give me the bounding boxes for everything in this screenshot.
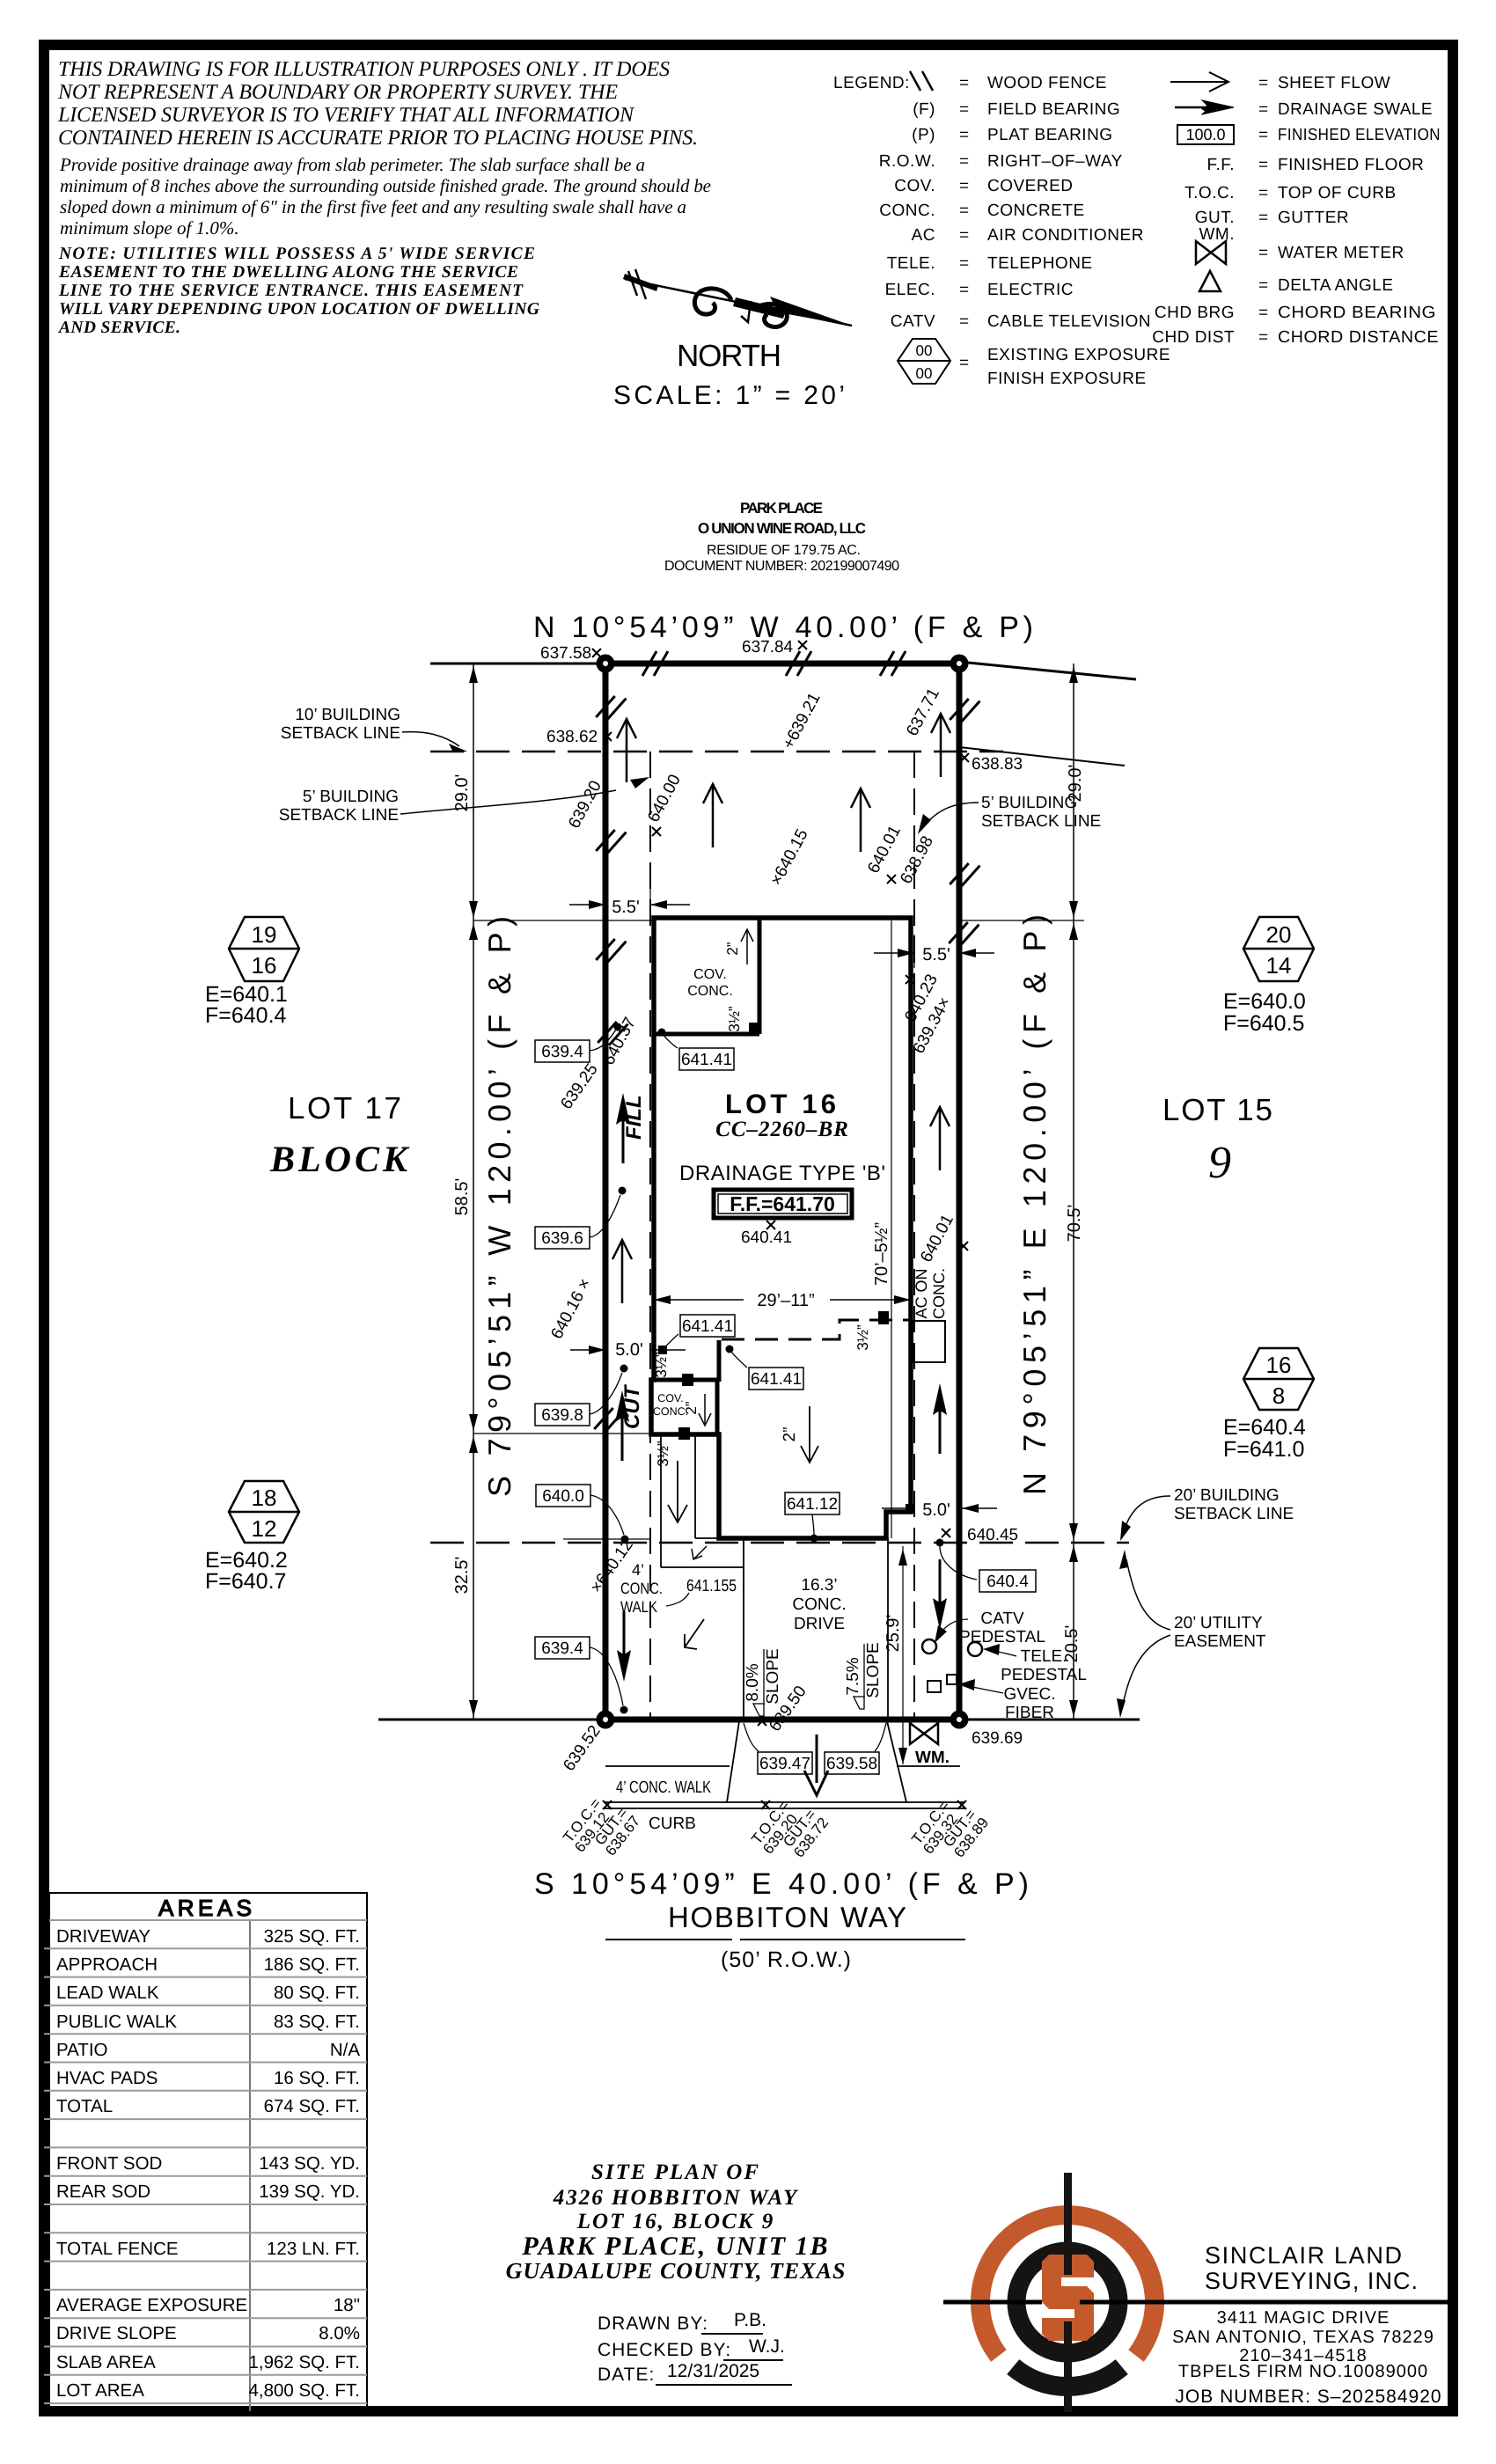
svg-text:GVEC.: GVEC. (1003, 1685, 1055, 1704)
svg-text:20’ BUILDING: 20’ BUILDING (1174, 1486, 1280, 1505)
svg-text:=: = (959, 226, 970, 245)
svg-text:NOTE: UTILITIES WILL POSSESS A: NOTE: UTILITIES WILL POSSESS A 5' WIDE S… (58, 245, 535, 263)
svg-text:58.5': 58.5' (452, 1178, 472, 1216)
svg-text:18: 18 (252, 1485, 277, 1511)
svg-text:3½”: 3½” (655, 1441, 671, 1467)
svg-text:REAR SOD: REAR SOD (56, 2182, 150, 2202)
svg-text:674 SQ. FT.: 674 SQ. FT. (264, 2096, 360, 2116)
svg-text:FINISHED ELEVATION: FINISHED ELEVATION (1278, 126, 1441, 144)
svg-text:=: = (1258, 126, 1269, 144)
svg-text:CATV: CATV (980, 1610, 1024, 1628)
svg-text:639.47: 639.47 (759, 1755, 810, 1773)
svg-text:CONC.: CONC. (792, 1595, 846, 1614)
svg-text:83 SQ. FT.: 83 SQ. FT. (274, 2012, 360, 2032)
svg-text:5’ BUILDING: 5’ BUILDING (303, 788, 399, 806)
svg-text:16: 16 (1266, 1352, 1292, 1378)
svg-text:14: 14 (1266, 952, 1292, 979)
svg-text:640.0: 640.0 (542, 1487, 584, 1506)
svg-text:=: = (959, 74, 970, 92)
svg-text:=: = (1258, 304, 1269, 322)
svg-text:637.58: 637.58 (540, 644, 591, 663)
svg-text:GUT.: GUT. (1195, 209, 1235, 227)
svg-text:SURVEYING, INC.: SURVEYING, INC. (1205, 2268, 1418, 2294)
svg-text:=: = (959, 100, 970, 119)
svg-text:PUBLIC WALK: PUBLIC WALK (56, 2012, 177, 2032)
svg-text:638.83: 638.83 (972, 755, 1023, 774)
svg-text:70.5': 70.5' (1065, 1205, 1084, 1243)
svg-text:639.4: 639.4 (541, 1043, 583, 1061)
svg-text:GUTTER: GUTTER (1278, 209, 1349, 227)
svg-text:minimum of 8 inches above the: minimum of 8 inches above the surroundin… (60, 175, 711, 196)
svg-text:APPROACH: APPROACH (56, 1954, 158, 1975)
svg-text:16.3’: 16.3’ (801, 1576, 837, 1595)
svg-text:4326 HOBBITON WAY: 4326 HOBBITON WAY (553, 2186, 799, 2210)
svg-text:DOCUMENT NUMBER: 202199007490: DOCUMENT NUMBER: 202199007490 (664, 559, 899, 574)
svg-text:SCALE: 1” = 20’: SCALE: 1” = 20’ (613, 381, 845, 410)
svg-text:sloped down a minimum of 6" in: sloped down a minimum of 6" in the first… (60, 196, 686, 217)
svg-text:F=640.5: F=640.5 (1223, 1011, 1304, 1036)
svg-text:638.62: 638.62 (546, 728, 598, 746)
svg-text:641.12: 641.12 (787, 1495, 838, 1514)
svg-text:WM.: WM. (915, 1749, 950, 1767)
svg-text:SETBACK LINE: SETBACK LINE (1174, 1505, 1294, 1523)
svg-text:AND SERVICE.: AND SERVICE. (57, 319, 180, 337)
svg-text:CHORD DISTANCE: CHORD DISTANCE (1278, 328, 1439, 347)
svg-text:=: = (959, 126, 970, 144)
svg-text:×640.15: ×640.15 (767, 826, 812, 889)
svg-text:7.5%: 7.5% (844, 1657, 862, 1695)
svg-text:FINISHED FLOOR: FINISHED FLOOR (1278, 156, 1424, 174)
svg-text:641.155: 641.155 (686, 1577, 737, 1595)
svg-text:639.20: 639.20 (565, 778, 605, 832)
svg-text:3½”: 3½” (854, 1324, 871, 1351)
svg-text:CHECKED BY:: CHECKED BY: (598, 2340, 731, 2360)
svg-text:NOT REPRESENT A BOUNDARY OR PR: NOT REPRESENT A BOUNDARY OR PROPERTY SUR… (57, 81, 618, 104)
svg-text:F=640.7: F=640.7 (205, 1569, 286, 1594)
svg-text:=: = (1258, 74, 1269, 92)
svg-text:639.8: 639.8 (541, 1406, 583, 1425)
svg-text:25.9': 25.9' (884, 1615, 903, 1653)
svg-text:HOBBITON WAY: HOBBITON WAY (668, 1901, 906, 1933)
svg-text:minimum slope of 1.0%.: minimum slope of 1.0%. (60, 217, 239, 238)
svg-text:639.4: 639.4 (541, 1639, 583, 1658)
svg-text:3411 MAGIC DRIVE: 3411 MAGIC DRIVE (1217, 2308, 1390, 2328)
svg-text:TELEPHONE: TELEPHONE (987, 254, 1093, 273)
svg-text:DRIVE SLOPE: DRIVE SLOPE (56, 2323, 177, 2343)
svg-text:WALK: WALK (620, 1598, 657, 1616)
svg-text:BLOCK: BLOCK (269, 1140, 411, 1180)
svg-text:640.01: 640.01 (864, 823, 905, 876)
svg-text:00: 00 (916, 342, 933, 359)
svg-text:20’ UTILITY: 20’ UTILITY (1174, 1614, 1263, 1632)
svg-text:143 SQ. YD.: 143 SQ. YD. (259, 2153, 360, 2174)
svg-text:32.5': 32.5' (452, 1557, 472, 1595)
svg-text:29.0': 29.0' (452, 774, 472, 812)
svg-text:LOT 17: LOT 17 (288, 1091, 401, 1126)
svg-text:SETBACK LINE: SETBACK LINE (279, 806, 399, 825)
svg-text:WILL VARY DEPENDING UPON LOCAT: WILL VARY DEPENDING UPON LOCATION OF DWE… (59, 300, 539, 319)
svg-text:TELE.: TELE. (1021, 1647, 1067, 1666)
svg-text:CONC.: CONC. (620, 1580, 663, 1597)
svg-text:638.98: 638.98 (897, 833, 937, 887)
svg-text:18": 18" (334, 2295, 360, 2315)
svg-text:(50’ R.O.W.): (50’ R.O.W.) (721, 1947, 851, 1972)
svg-text:640.45: 640.45 (967, 1526, 1018, 1544)
svg-text:CHD DIST: CHD DIST (1152, 328, 1235, 347)
svg-text:20: 20 (1266, 921, 1292, 948)
svg-text:LINE TO THE SERVICE ENTRANCE.: LINE TO THE SERVICE ENTRANCE. THIS EASEM… (58, 282, 524, 300)
svg-text:F.F.: F.F. (1206, 156, 1235, 174)
svg-text:CONC.: CONC. (930, 1268, 948, 1319)
svg-text:TOTAL FENCE: TOTAL FENCE (56, 2239, 179, 2259)
svg-text:F=641.0: F=641.0 (1223, 1437, 1304, 1462)
svg-text:123 LN. FT.: 123 LN. FT. (267, 2239, 360, 2259)
svg-text:639.25: 639.25 (557, 1060, 602, 1113)
svg-text:E=640.0: E=640.0 (1223, 989, 1306, 1014)
svg-text:FILL: FILL (622, 1095, 646, 1140)
svg-text:TOP OF CURB: TOP OF CURB (1278, 184, 1397, 202)
svg-text:+639.21: +639.21 (780, 690, 825, 752)
svg-text:325 SQ. FT.: 325 SQ. FT. (264, 1926, 360, 1947)
svg-text:3½”: 3½” (726, 1006, 743, 1032)
svg-text:=: = (1258, 328, 1269, 347)
svg-text:CONC.: CONC. (687, 984, 733, 999)
svg-text:S 79°05’51” W 120.00’ (F & P): S 79°05’51” W 120.00’ (F & P) (481, 916, 517, 1497)
svg-text:COV.: COV. (693, 967, 727, 982)
svg-text:637.84: 637.84 (742, 638, 794, 656)
svg-text:2”: 2” (683, 1401, 700, 1414)
svg-text:FIELD BEARING: FIELD BEARING (987, 100, 1120, 119)
svg-text:=: = (959, 202, 970, 220)
svg-text:CONTAINED HEREIN IS ACCURATE P: CONTAINED HEREIN IS ACCURATE PRIOR TO PL… (58, 127, 698, 150)
svg-text:S 10°54’09” E 40.00’ (F & P): S 10°54’09” E 40.00’ (F & P) (534, 1867, 1029, 1901)
svg-text:DRIVE: DRIVE (794, 1615, 845, 1633)
svg-text:SINCLAIR LAND: SINCLAIR LAND (1205, 2242, 1402, 2269)
svg-text:639.58: 639.58 (826, 1755, 877, 1773)
svg-text:139 SQ. YD.: 139 SQ. YD. (259, 2182, 360, 2202)
svg-text:8.0%: 8.0% (744, 1663, 762, 1701)
svg-text:N/A: N/A (330, 2040, 361, 2060)
svg-text:5.0': 5.0' (922, 1500, 950, 1520)
svg-text:4’ CONC. WALK: 4’ CONC. WALK (616, 1778, 711, 1797)
svg-text:9: 9 (1208, 1138, 1231, 1188)
svg-text:LOT 16: LOT 16 (725, 1089, 836, 1119)
svg-text:4,800 SQ. FT.: 4,800 SQ. FT. (249, 2380, 360, 2401)
svg-text:=: = (959, 254, 970, 273)
svg-text:T.O.C.: T.O.C. (1184, 184, 1235, 202)
svg-text:=: = (1258, 244, 1269, 262)
svg-text:LEAD WALK: LEAD WALK (56, 1983, 159, 2003)
svg-text:=: = (959, 281, 970, 299)
svg-text:CURB: CURB (649, 1815, 696, 1833)
svg-text:16: 16 (252, 952, 277, 979)
svg-text:8.0%: 8.0% (319, 2323, 360, 2343)
svg-text:F.F.=641.70: F.F.=641.70 (730, 1192, 835, 1215)
svg-text:WM.: WM. (1199, 225, 1235, 244)
svg-text:TBPELS FIRM NO.10089000: TBPELS FIRM NO.10089000 (1178, 2362, 1428, 2381)
svg-text:CATV: CATV (891, 312, 935, 331)
svg-text:FRONT SOD: FRONT SOD (56, 2153, 162, 2174)
svg-text:70’–5½”: 70’–5½” (872, 1222, 891, 1286)
svg-text:=: = (1258, 100, 1269, 119)
svg-text:SAN ANTONIO, TEXAS 78229: SAN ANTONIO, TEXAS 78229 (1172, 2328, 1434, 2347)
svg-text:DRIVEWAY: DRIVEWAY (56, 1926, 150, 1947)
svg-text:SLOPE: SLOPE (864, 1642, 883, 1698)
svg-text:JOB NUMBER: S–202584920: JOB NUMBER: S–202584920 (1175, 2387, 1441, 2407)
svg-text:641.41: 641.41 (681, 1051, 732, 1069)
svg-text:EASEMENT TO THE DWELLING ALONG: EASEMENT TO THE DWELLING ALONG THE SERVI… (58, 263, 518, 282)
svg-text:AREAS: AREAS (158, 1895, 252, 1921)
svg-text:Provide positive drainage away: Provide positive drainage away from slab… (59, 154, 645, 175)
svg-text:640.41: 640.41 (741, 1228, 792, 1247)
svg-text:PATIO: PATIO (56, 2040, 107, 2060)
svg-text:641.41: 641.41 (751, 1370, 802, 1389)
svg-text:SETBACK LINE: SETBACK LINE (281, 724, 400, 743)
svg-text:CABLE TELEVISION: CABLE TELEVISION (987, 312, 1151, 331)
svg-text:16 SQ. FT.: 16 SQ. FT. (274, 2068, 360, 2088)
svg-text:10’ BUILDING: 10’ BUILDING (295, 706, 400, 724)
svg-text:CONCRETE: CONCRETE (987, 202, 1085, 220)
svg-text:F=640.4: F=640.4 (205, 1003, 287, 1028)
svg-text:19: 19 (252, 921, 277, 948)
svg-text:8: 8 (1272, 1382, 1285, 1409)
svg-text:RIGHT–OF–WAY: RIGHT–OF–WAY (987, 152, 1123, 171)
svg-text:AIR CONDITIONER: AIR CONDITIONER (987, 226, 1144, 245)
svg-text:EXISTING EXPOSURE: EXISTING EXPOSURE (987, 346, 1170, 364)
svg-text:LOT AREA: LOT AREA (56, 2380, 144, 2401)
svg-text:W.J.: W.J. (749, 2336, 785, 2357)
svg-text:640.4: 640.4 (986, 1573, 1029, 1591)
svg-text:5.5': 5.5' (922, 945, 950, 964)
svg-text:12: 12 (252, 1515, 277, 1542)
svg-text:COVERED: COVERED (987, 177, 1073, 195)
svg-text:FINISH EXPOSURE: FINISH EXPOSURE (987, 370, 1147, 388)
svg-text:=: = (1258, 276, 1269, 295)
svg-text:186 SQ. FT.: 186 SQ. FT. (264, 1954, 360, 1975)
svg-text:637.71: 637.71 (903, 686, 943, 739)
svg-text:DRAWN BY:: DRAWN BY: (598, 2314, 708, 2334)
svg-text:5’ BUILDING: 5’ BUILDING (981, 794, 1077, 812)
svg-text:=: = (959, 312, 970, 331)
svg-text:100.0: 100.0 (1185, 126, 1225, 143)
svg-text:P.B.: P.B. (734, 2310, 766, 2330)
svg-text:00: 00 (916, 365, 933, 382)
svg-text:WOOD FENCE: WOOD FENCE (987, 74, 1107, 92)
svg-text:CONC.: CONC. (879, 202, 935, 220)
svg-text:2”: 2” (781, 1427, 799, 1442)
svg-text:LOT 15: LOT 15 (1162, 1093, 1272, 1127)
svg-text:DRAINAGE TYPE 'B': DRAINAGE TYPE 'B' (679, 1162, 885, 1185)
svg-text:=: = (1258, 184, 1269, 202)
svg-text:GUADALUPE COUNTY, TEXAS: GUADALUPE COUNTY, TEXAS (506, 2258, 847, 2284)
svg-text:(P): (P) (912, 126, 935, 144)
svg-text:AVERAGE EXPOSURE: AVERAGE EXPOSURE (56, 2295, 247, 2315)
svg-text:=: = (1258, 156, 1269, 174)
svg-text:N 79°05’51” E 120.00’ (F & P): N 79°05’51” E 120.00’ (F & P) (1016, 914, 1052, 1495)
svg-text:SLOPE: SLOPE (764, 1648, 782, 1704)
svg-text:=: = (959, 152, 970, 171)
svg-text:2”: 2” (724, 942, 741, 955)
svg-text:=: = (1258, 209, 1269, 227)
svg-text:NORTH: NORTH (677, 339, 781, 373)
svg-text:AC: AC (912, 226, 935, 245)
svg-text:COV.: COV. (894, 177, 935, 195)
svg-text:639.6: 639.6 (541, 1229, 583, 1248)
svg-text:639.52: 639.52 (560, 1722, 605, 1775)
svg-text:WATER METER: WATER METER (1278, 244, 1404, 262)
svg-text:5.0': 5.0' (615, 1340, 643, 1360)
svg-text:TELE.: TELE. (887, 254, 935, 273)
svg-text:SHEET FLOW: SHEET FLOW (1278, 74, 1390, 92)
svg-text:=: = (959, 354, 970, 372)
svg-text:R.O.W.: R.O.W. (879, 152, 935, 171)
svg-text:CHORD BEARING: CHORD BEARING (1278, 304, 1436, 322)
svg-text:LEGEND:: LEGEND: (833, 74, 910, 92)
svg-text:PARK PLACE, UNIT 1B: PARK PLACE, UNIT 1B (521, 2232, 829, 2261)
svg-text:3½”: 3½” (653, 1352, 670, 1378)
svg-text:640.01: 640.01 (917, 1212, 957, 1265)
svg-text:E=640.4: E=640.4 (1223, 1415, 1306, 1440)
svg-text:SITE PLAN OF: SITE PLAN OF (591, 2160, 760, 2184)
svg-text:DRAINAGE SWALE: DRAINAGE SWALE (1278, 100, 1433, 119)
svg-text:DELTA ANGLE: DELTA ANGLE (1278, 276, 1394, 295)
svg-text:HVAC PADS: HVAC PADS (56, 2068, 158, 2088)
svg-text:5.5': 5.5' (612, 898, 640, 917)
svg-text:=: = (959, 177, 970, 195)
svg-text:DATE:: DATE: (598, 2365, 655, 2385)
svg-text:(F): (F) (913, 100, 935, 119)
svg-text:CUT: CUT (620, 1383, 644, 1429)
svg-text:TOTAL: TOTAL (56, 2096, 113, 2116)
svg-text:80 SQ. FT.: 80 SQ. FT. (274, 1983, 360, 2003)
svg-text:CHD BRG: CHD BRG (1155, 304, 1235, 322)
svg-text:COV.: COV. (657, 1392, 683, 1404)
svg-text:THIS DRAWING IS FOR ILLUSTRATI: THIS DRAWING IS FOR ILLUSTRATION PURPOSE… (58, 58, 670, 81)
svg-text:SETBACK LINE: SETBACK LINE (981, 812, 1101, 831)
svg-text:29’–11”: 29’–11” (757, 1291, 814, 1310)
svg-text:ELECTRIC: ELECTRIC (987, 281, 1074, 299)
svg-text:CC–2260–BR: CC–2260–BR (715, 1118, 849, 1141)
svg-text:12/31/2025: 12/31/2025 (667, 2361, 759, 2381)
svg-text:SLAB AREA: SLAB AREA (56, 2352, 156, 2372)
svg-text:640.16 ×: 640.16 × (547, 1276, 595, 1343)
svg-text:LOT 16, BLOCK 9: LOT 16, BLOCK 9 (576, 2210, 774, 2233)
svg-text:1,962 SQ. FT.: 1,962 SQ. FT. (249, 2352, 360, 2372)
svg-text:RESIDUE OF 179.75 AC.: RESIDUE OF 179.75 AC. (707, 543, 861, 558)
svg-text:PEDESTAL: PEDESTAL (1001, 1666, 1087, 1684)
svg-text:LICENSED SURVEYOR IS TO VERIFY: LICENSED SURVEYOR IS TO VERIFY THAT ALL … (57, 104, 635, 127)
svg-text:639.69: 639.69 (972, 1729, 1023, 1748)
svg-text:PARK PLACE: PARK PLACE (740, 500, 823, 517)
svg-text:FIBER: FIBER (1005, 1704, 1054, 1722)
svg-text:ELEC.: ELEC. (885, 281, 935, 299)
svg-text:PLAT BEARING: PLAT BEARING (987, 126, 1113, 144)
svg-text:AC ON: AC ON (913, 1268, 930, 1318)
svg-text:EASEMENT: EASEMENT (1174, 1632, 1266, 1651)
svg-text:641.41: 641.41 (682, 1317, 733, 1336)
svg-text:4’: 4’ (632, 1561, 644, 1579)
svg-text:O UNION WINE ROAD, LLC: O UNION WINE ROAD, LLC (698, 520, 866, 537)
